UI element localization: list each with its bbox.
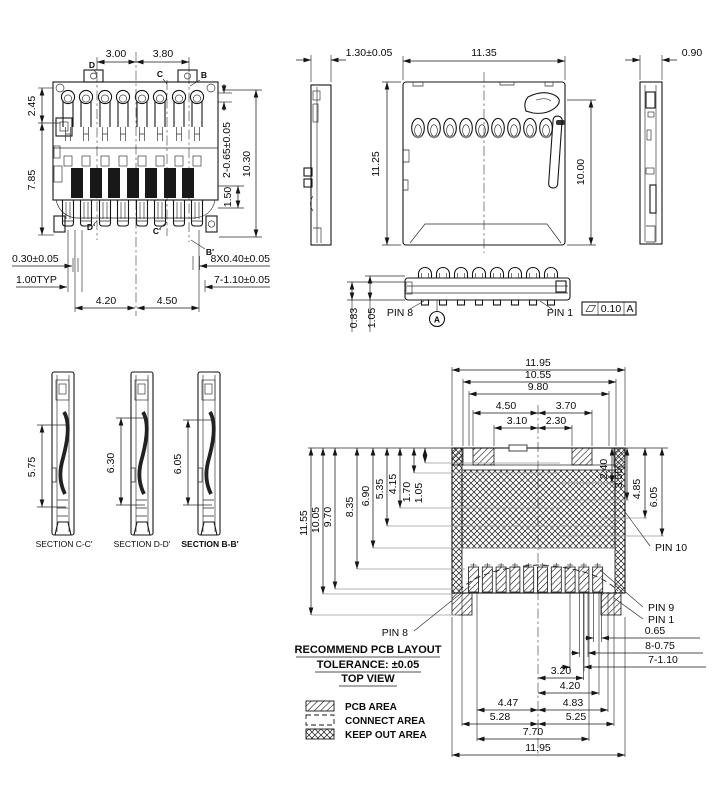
pcb-pin9-label: PIN 9	[648, 602, 674, 614]
topview-width: 11.35	[471, 47, 497, 59]
section-mark-b: B	[201, 70, 207, 80]
pcb-width-4: 3.70	[556, 400, 577, 412]
front-dim-bl-0: 0.30±0.05	[12, 253, 59, 265]
section-mark-d2: D'	[87, 222, 95, 232]
pcb-area-label: PCB AREA	[345, 702, 397, 713]
pcb-width-2: 9.80	[528, 381, 549, 393]
topview-shield-height: 10.00	[575, 159, 587, 185]
pcb-height-l1: 10.05	[310, 507, 322, 533]
front-dim-br-1: 7-1.10±0.05	[214, 274, 270, 286]
note-line-2: TOP VIEW	[341, 673, 395, 685]
keep-out-area-label: KEEP OUT AREA	[345, 730, 427, 741]
section-mark-c: C	[157, 69, 163, 79]
topview-height: 11.25	[370, 151, 382, 177]
pcb-height-l0: 11.55	[298, 510, 310, 536]
front-dim-left-0: 2.45	[26, 96, 38, 117]
pcb-height-l7: 1.70	[401, 482, 413, 503]
microsd-connector-drawing: 3.00 3.80 2.45 7.85 2-0.65±0.05 10.30 1.…	[0, 0, 720, 811]
section-mark-b2: B'	[206, 247, 214, 257]
weld-mark	[556, 120, 565, 125]
pcb-height-l4: 6.90	[360, 486, 372, 507]
pcb-height-l8: 1.05	[413, 483, 425, 504]
pcb-bw-4: 5.28	[490, 711, 511, 723]
front-dim-top-1: 3.80	[153, 48, 174, 60]
pcb-pad-tr	[614, 448, 625, 467]
flatness-tolerance: 0.10	[601, 303, 622, 315]
connect-area-label: CONNECT AREA	[345, 716, 425, 727]
note-line-1: TOLERANCE: ±0.05	[317, 659, 419, 671]
pcb-width-3: 4.50	[496, 400, 517, 412]
front-dim-bl-1: 1.00TYP	[16, 274, 57, 286]
pcb-height-l6: 4.15	[387, 474, 399, 495]
section-bb-label: SECTION B-B'	[181, 539, 238, 549]
section-bb-dim: 6.05	[172, 454, 184, 475]
seating-dim-1: 1.05	[366, 308, 378, 329]
section-dd-label: SECTION D-D'	[114, 539, 171, 549]
pcb-pad-br	[601, 593, 621, 615]
pcb-bw-2: 4.47	[498, 697, 519, 709]
note-line-0: RECOMMEND PCB LAYOUT	[295, 644, 442, 656]
pcb-bw-0: 3.20	[551, 665, 572, 677]
sideview-thickness: 0.90	[682, 47, 703, 59]
pcb-height-r0: 2.40	[598, 459, 610, 480]
pcb-bw-7: 11.95	[525, 742, 551, 754]
keep-out-area-swatch	[306, 729, 334, 739]
connect-area-swatch	[306, 715, 334, 725]
front-dim-br-0: 8X0.40±0.05	[211, 253, 271, 265]
topview-thickness: 1.30±0.05	[346, 47, 393, 59]
pcb-pin10-label: PIN 10	[655, 542, 687, 554]
pcb-pad-tl-inner	[473, 448, 494, 465]
front-dim-bottom-1: 4.50	[157, 295, 178, 307]
section-mark-d: D	[89, 60, 95, 70]
front-dim-right-1: 10.30	[241, 151, 253, 177]
front-dim-bottom-0: 4.20	[96, 295, 117, 307]
pcb-height-l2: 9.70	[322, 507, 334, 528]
front-dim-right-0: 2-0.65±0.05	[221, 122, 233, 178]
pin8-label: PIN 8	[387, 307, 413, 319]
pcb-pin8-label: PIN 8	[382, 627, 408, 639]
pcb-width-0: 11.95	[525, 357, 551, 369]
pcb-height-r2: 4.85	[631, 479, 643, 500]
datum-letter: A	[434, 315, 440, 325]
sheet-background	[0, 0, 720, 811]
pcb-width-1: 10.55	[525, 369, 551, 381]
pcb-height-l3: 8.35	[344, 497, 356, 518]
section-cc-dim: 5.75	[26, 457, 38, 478]
pcb-width-5: 3.10	[507, 415, 528, 427]
pcb-bw-5: 5.25	[566, 711, 587, 723]
pcb-pad-dim-0: 0.65	[645, 625, 666, 637]
front-dim-right-2: 1.50	[222, 187, 234, 208]
pcb-height-l5: 5.35	[374, 479, 386, 500]
keepout-left-rail	[452, 448, 462, 593]
pcb-area-swatch	[306, 701, 334, 711]
pcb-pad-tl	[452, 448, 463, 465]
pcb-pad-dim-2: 7-1.10	[648, 654, 678, 666]
pcb-pad-tr-inner	[572, 448, 592, 465]
pcb-pad-dim-1: 8-0.75	[645, 640, 675, 652]
front-dim-top-0: 3.00	[106, 48, 127, 60]
section-cc-label: SECTION C-C'	[36, 539, 93, 549]
pcb-width-6: 2.30	[546, 415, 567, 427]
pcb-height-r3: 6.05	[648, 487, 660, 508]
section-dd-dim: 6.30	[105, 453, 117, 474]
pcb-bw-1: 4.20	[560, 680, 581, 692]
pcb-bw-6: 7.70	[523, 726, 544, 738]
seating-dim-0: 0.83	[348, 308, 360, 329]
pcb-height-r1: 3.55	[613, 468, 625, 489]
flatness-datum-ref: A	[626, 303, 633, 315]
pin1-label: PIN 1	[547, 307, 573, 319]
pcb-bw-3: 4.83	[563, 697, 584, 709]
section-mark-c2: C'	[153, 226, 161, 236]
front-dim-left-1: 7.85	[26, 170, 38, 191]
